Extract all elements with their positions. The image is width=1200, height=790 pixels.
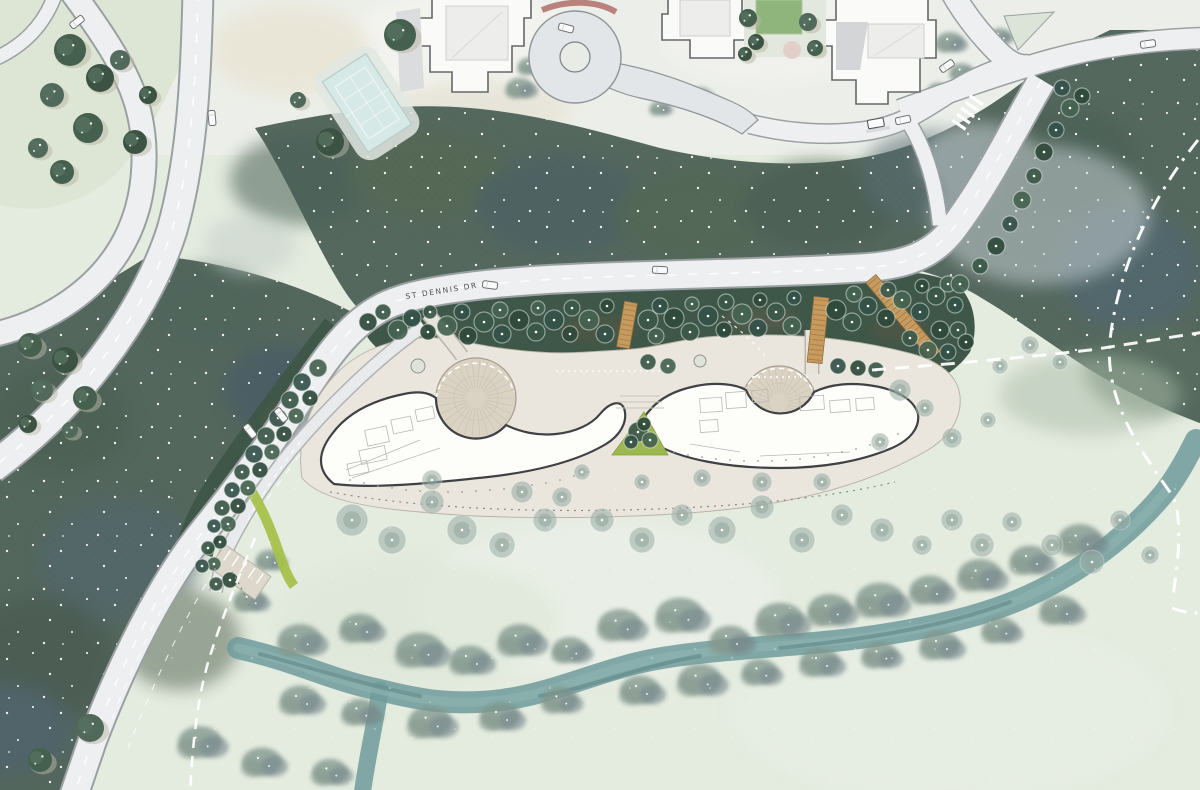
planter-circle-east: [694, 355, 706, 367]
cul-de-sac-island: [560, 42, 590, 72]
car-icon: [482, 280, 498, 289]
car-icon: [1140, 39, 1156, 48]
car-icon: [652, 266, 667, 274]
site-plan-map: ST DENNIS DR: [0, 0, 1200, 790]
site-plan-page: ST DENNIS DR: [0, 0, 1200, 790]
planter-circle-west: [411, 359, 425, 373]
meadow-speckles: [150, 480, 1200, 790]
courtyard-lawn: [756, 0, 802, 34]
courtyard-plaza: [783, 41, 801, 59]
car-icon: [208, 110, 216, 126]
